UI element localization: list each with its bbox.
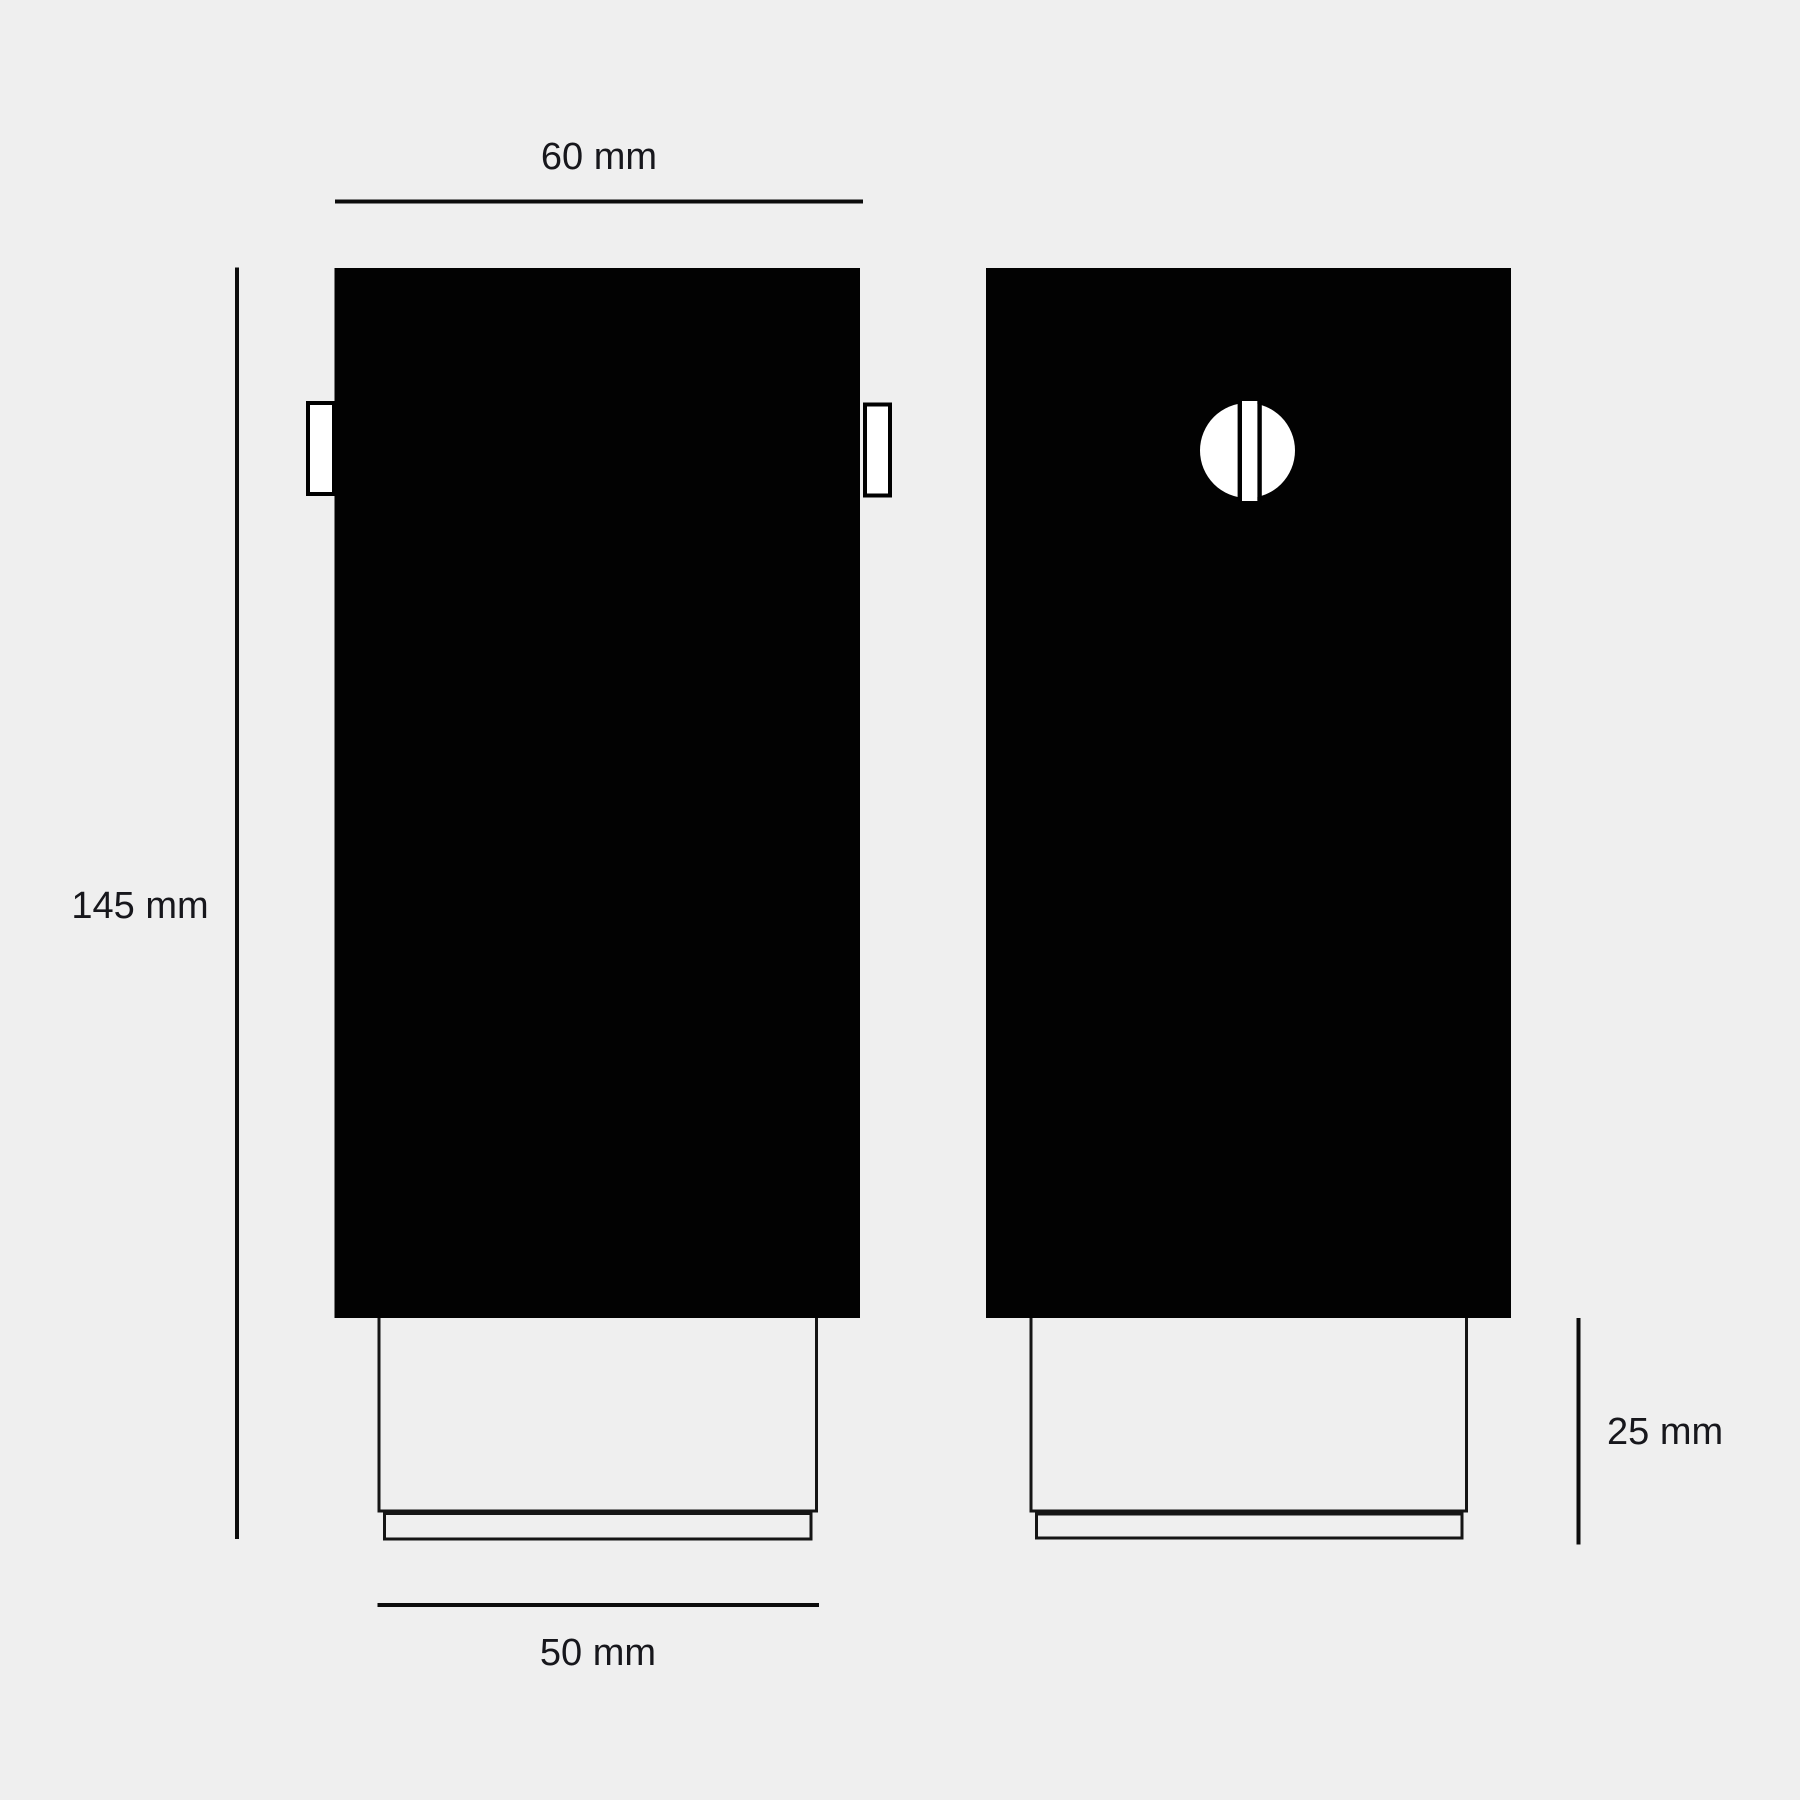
svg-text:50 mm: 50 mm — [540, 1632, 656, 1674]
svg-text:25 mm: 25 mm — [1607, 1411, 1723, 1453]
svg-text:145 mm: 145 mm — [71, 885, 208, 927]
svg-text:60 mm: 60 mm — [541, 136, 657, 178]
